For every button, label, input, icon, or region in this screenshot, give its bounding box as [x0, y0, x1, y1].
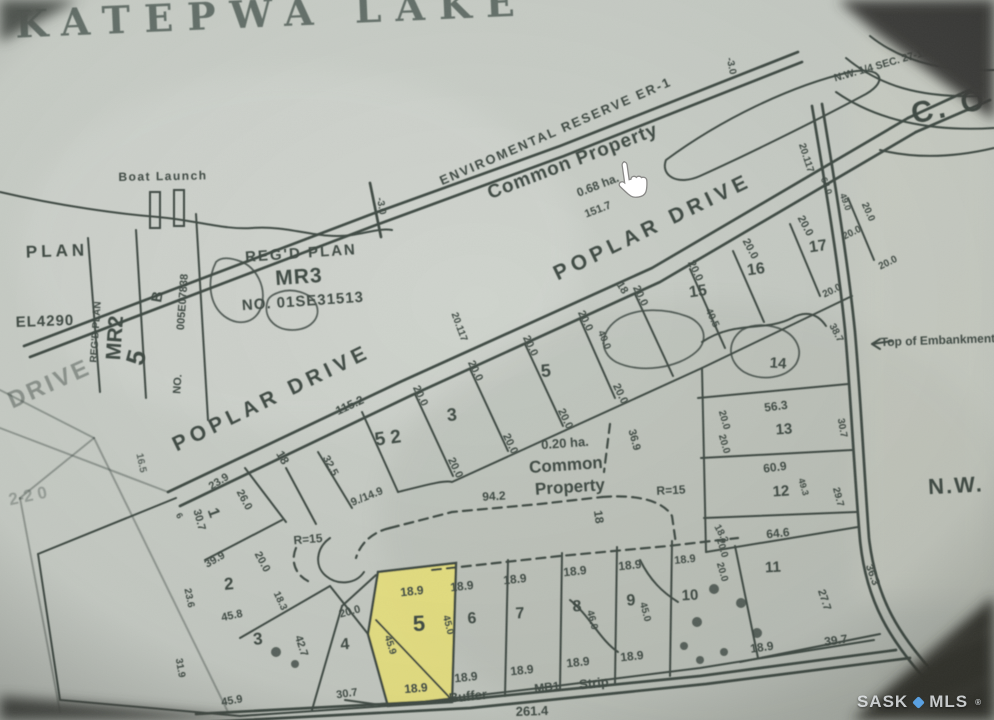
sask-mls-watermark: SASK MLS ® [857, 692, 982, 712]
map-photo[interactable]: KATEPWA LAKEN.W. 1/4 SEC. 27-19-12-2C. O… [0, 0, 994, 720]
watermark-dot-icon [912, 696, 925, 709]
plat-map-canvas: KATEPWA LAKEN.W. 1/4 SEC. 27-19-12-2C. O… [0, 0, 994, 720]
film-grain [0, 0, 994, 720]
watermark-registered-icon: ® [975, 698, 982, 707]
watermark-sask: SASK [857, 692, 908, 712]
watermark-mls: MLS [929, 692, 968, 712]
